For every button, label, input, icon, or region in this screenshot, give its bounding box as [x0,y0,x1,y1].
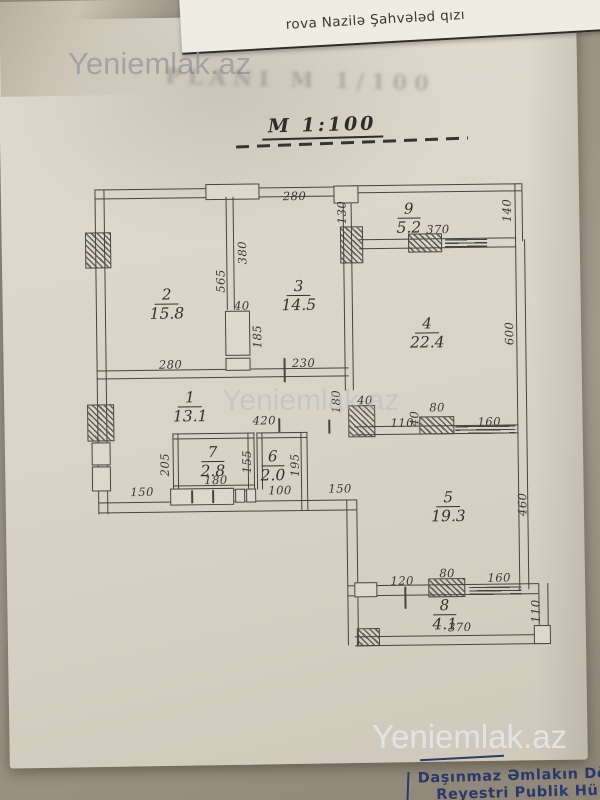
window [445,239,487,249]
room-number: 6 [261,448,285,466]
room-area: 13.1 [173,407,208,425]
wall-right [515,239,529,589]
wall-box [354,582,377,597]
room-label-4: 422.4 [410,313,445,351]
dimension-label: 180 [204,473,228,487]
wall-box [534,625,551,644]
room-area: 5.2 [396,219,421,237]
wall-room1-room4 [343,250,354,390]
watermark-middle: Yeniemlak.az [222,384,399,418]
room-label-3: 314.5 [281,276,316,314]
room-number: 5 [436,489,460,507]
dim-tick [404,587,406,609]
room-area: 2.0 [260,466,285,484]
room-number: 1 [178,389,202,407]
balcony9-right-wall [514,183,523,241]
wall-box [92,466,111,491]
dimension-label: 280 [283,189,307,203]
balcony8-bottom-wall [355,634,549,646]
dimension-label: 130 [335,201,349,225]
dim-tick [278,418,280,432]
dimension-label: 380 [235,241,249,265]
cupboard [225,311,251,356]
dimension-label: 120 [390,574,414,588]
room-number: 9 [397,201,421,219]
wall-box [235,489,245,503]
room-area: 14.5 [281,296,316,314]
radiator-divider [191,490,193,503]
dimension-label: 40 [407,411,421,427]
window [469,586,521,596]
room-number: 7 [201,444,225,462]
wall-room2-room3 [226,197,235,310]
wall-left-of-room5 [346,499,359,645]
column-hatched [85,232,111,268]
room-area: 19.3 [431,507,466,525]
room7-wall [172,433,179,490]
dimension-label: 40 [234,299,250,313]
radiator-divider [212,490,214,503]
dimension-label: 160 [487,570,511,584]
photo-of-floorplan-document: rova Nazilə Şahvələd qızı Yeniemlak.az P… [0,0,600,800]
radiator-box [170,488,234,506]
dimension-label: 110 [528,599,542,623]
dimension-label: 195 [288,453,302,477]
dimension-label: 80 [429,400,445,414]
dimension-label: 205 [158,453,172,477]
dim-tick [328,420,330,434]
dimension-label: 150 [130,485,154,499]
dimension-label: 600 [502,322,516,346]
cupboard [225,358,250,371]
balcony9-top-wall [349,183,521,193]
column-hatched [87,404,114,441]
room-label-9: 95.2 [396,199,421,237]
wall-box [246,489,256,503]
dimension-label: 280 [159,357,183,371]
room-number: 2 [155,286,179,304]
room-number: 8 [433,597,457,615]
dimension-label: 460 [515,492,529,516]
room-label-1: 113.1 [173,387,208,425]
dimension-label: 370 [426,222,450,236]
registry-footer-text: Daşınmaz Əmlakın Dövlə Reyestri Publik H… [418,765,600,800]
room-number: 4 [415,315,439,333]
dimension-label: 370 [448,620,472,634]
room-area: 15.8 [150,304,185,322]
wall-box [92,442,111,465]
dimension-label: 565 [213,269,227,293]
dimension-label: 155 [240,450,254,474]
room-label-5: 519.3 [431,487,466,525]
room-label-2: 215.8 [149,284,184,322]
dimension-label: 185 [250,325,264,349]
dimension-label: 230 [292,356,316,370]
room-number: 3 [287,278,311,296]
dimension-label: 100 [268,483,292,497]
dimension-label: 160 [477,415,501,429]
room-label-6: 62.0 [260,446,285,484]
column-hatched [357,628,380,646]
dimension-label: 140 [500,199,514,223]
dimension-label: 150 [328,481,352,495]
room7-wall [172,433,254,440]
dimension-label: 80 [439,566,455,580]
dim-tick [283,358,285,382]
room-area: 22.4 [410,333,445,351]
column-hatched [419,416,454,434]
